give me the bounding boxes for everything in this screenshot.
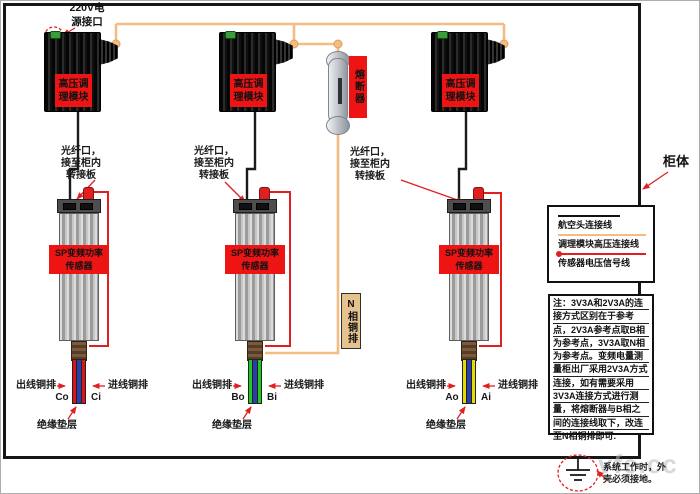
copper-busbars: [248, 359, 262, 404]
fiber-port-label-a: 光纤口， 接至柜内 转接板: [339, 147, 401, 182]
fiber-port: [239, 203, 252, 210]
terminal-ci: Ci: [87, 392, 105, 404]
fiber-port-label-c: 光纤口， 接至柜内 转接板: [53, 146, 109, 181]
terminal-bo: Bo: [229, 392, 247, 404]
module-label: 高压调 理模块: [442, 74, 479, 107]
legend-item-label: 调理模块高压连接线: [558, 237, 653, 250]
legend-orange-line: [558, 234, 646, 236]
fiber-wire-b: [247, 111, 255, 199]
hv-fuse-to-b-phase: [265, 129, 338, 353]
power-port-connector: [225, 31, 236, 39]
power-port-label: 220V电 源接口: [63, 2, 111, 29]
incoming-busbar: [81, 359, 86, 404]
note-box: 注：3V3A和2V3A的连 接方式区别在于参考 点，2V3A参考点取B相 为参考…: [548, 294, 654, 435]
copper-busbars: [72, 359, 86, 404]
terminal-ao: Ao: [443, 392, 461, 404]
incoming-busbar: [257, 359, 262, 404]
ground-symbol: [566, 459, 590, 480]
power-port-connector: [437, 31, 448, 39]
sensor-body: [449, 213, 489, 341]
note-line: 连接，如有需要采用: [553, 377, 649, 390]
legend-item-label: 传感器电压信号线: [558, 256, 653, 269]
sensor-body: [235, 213, 275, 341]
legend-red-line: [558, 253, 646, 255]
fiber-wire-a: [459, 110, 466, 199]
hv-conditioning-module-a: 高压调 理模块: [431, 32, 488, 112]
diagram-canvas: 220V电 源接口 高压调 理模块 高压调 理模块 高压调 理模块 熔断器 N相…: [0, 0, 700, 494]
in-busbar-label-b: 进线铜排: [284, 380, 331, 392]
module-label: 高压调 理模块: [55, 74, 92, 107]
note-line: 至N相铜排即可.: [553, 430, 649, 442]
legend-red-dot: [556, 251, 562, 257]
legend-black-line: [558, 215, 620, 217]
fiber-port: [470, 203, 483, 210]
cabinet-label: 柜体: [663, 151, 689, 170]
sensor-label: SP变频功率 传感器: [49, 245, 109, 274]
arrow-cabinet: [643, 172, 668, 189]
fuse-label: 熔断器: [349, 56, 367, 118]
fiber-port: [80, 203, 93, 210]
arrow-insulation-a: [457, 407, 465, 419]
sensor-terminal-stub: [461, 341, 477, 361]
copper-busbars: [462, 359, 476, 404]
sensor-body: [59, 213, 99, 341]
fiber-port: [453, 203, 466, 210]
note-line: 注：3V3A和2V3A的连: [553, 297, 649, 310]
note-line: 量柜出厂采用2V3A方式: [553, 363, 649, 376]
incoming-busbar: [471, 359, 476, 404]
n-busbar-label: N相铜排: [341, 293, 361, 349]
arrow-insulation-c: [68, 407, 76, 419]
sensor-terminal-stub: [71, 341, 87, 361]
insulation-label-b: 绝缘垫层: [212, 420, 260, 432]
note-line: 间的连接线取下，改连: [553, 417, 649, 430]
fiber-port: [256, 203, 269, 210]
fuse-window: [338, 78, 342, 104]
arrow-insulation-b: [243, 407, 251, 419]
out-busbar-label-a: 出线铜排: [399, 380, 446, 392]
in-busbar-label-a: 进线铜排: [498, 380, 545, 392]
insulation-label-a: 绝缘垫层: [426, 420, 474, 432]
in-busbar-label-c: 进线铜排: [108, 380, 155, 392]
note-line: 量，将熔断器与B相之: [553, 403, 649, 416]
sensor-top-cap: [447, 199, 491, 213]
sensor-label: SP变频功率 传感器: [225, 245, 285, 274]
fuse-cap-bottom: [326, 116, 350, 135]
fiber-port-label-b: 光纤口， 接至柜内 转接板: [186, 146, 242, 181]
sensor-top-cap: [233, 199, 277, 213]
terminal-ai: Ai: [477, 392, 495, 404]
note-line: 为参考点，3V3A取N相: [553, 337, 649, 350]
insulation-label-c: 绝缘垫层: [37, 420, 85, 432]
legend-item-label: 航空头连接线: [558, 218, 653, 231]
note-line: 为参考点。变频电量测: [553, 350, 649, 363]
out-busbar-label-c: 出线铜排: [9, 380, 56, 392]
legend-box: 航空头连接线 调理模块高压连接线 传感器电压信号线: [547, 205, 655, 283]
sensor-terminal-stub: [247, 341, 263, 361]
note-line: 点，2V3A参考点取B相: [553, 324, 649, 337]
note-line: 3V3A连接方式进行测: [553, 390, 649, 403]
sensor-label: SP变频功率 传感器: [439, 245, 499, 274]
power-port-connector: [50, 31, 61, 39]
hv-conditioning-module-c: 高压调 理模块: [44, 32, 101, 112]
ground-note: 系统工作时，外 壳必须接地。: [603, 461, 666, 485]
terminal-co: Co: [53, 392, 71, 404]
note-line: 接方式区别在于参考: [553, 310, 649, 323]
terminal-bi: Bi: [263, 392, 281, 404]
sensor-top-cap: [57, 199, 101, 213]
hv-conditioning-module-b: 高压调 理模块: [219, 32, 276, 112]
fiber-port: [63, 203, 76, 210]
junction-dot: [334, 40, 342, 48]
module-label: 高压调 理模块: [230, 74, 267, 107]
out-busbar-label-b: 出线铜排: [185, 380, 232, 392]
